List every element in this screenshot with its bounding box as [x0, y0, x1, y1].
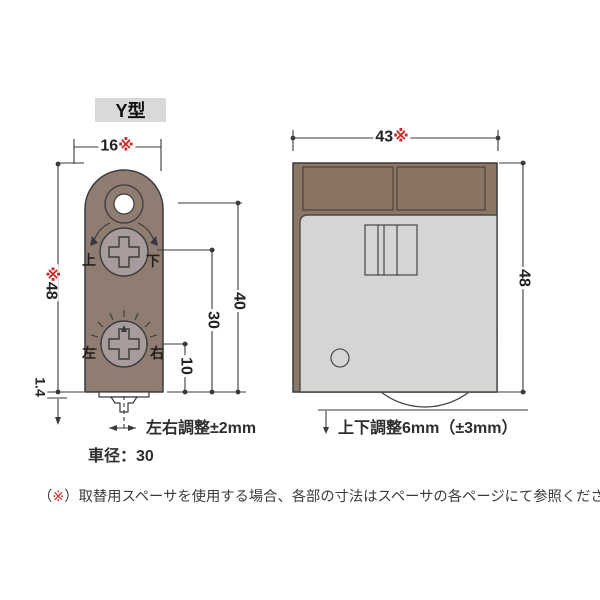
dim-1-4: 1.4 [33, 375, 48, 398]
technical-drawing-page: Y型 16※ ※48 40 30 10 1.4 上 下 左 右 左右調整±2mm… [0, 0, 600, 600]
footnote: （※）取替用スペーサを使用する場合、各部の寸法はスペーサの各ページにて参照くださ… [38, 490, 600, 504]
type-label: Y型 [95, 98, 166, 122]
dim-30: 30 [204, 309, 221, 331]
dim-10: 10 [177, 355, 194, 377]
housing-body [300, 215, 497, 392]
asterisk-marker: ※ [42, 266, 59, 282]
right-roller-front-view [293, 163, 528, 434]
wheel-diameter-note: 車径：30 [88, 449, 154, 465]
mount-hole [114, 194, 134, 214]
frame-panel-right [397, 167, 485, 210]
updown-adjust-note: 上下調整6mm（±3mm） [338, 421, 518, 437]
screw-label-right: 右 [150, 346, 164, 360]
dim-height-48: ※48 [42, 264, 59, 301]
screw-label-left: 左 [82, 346, 96, 360]
dim-40: 40 [230, 290, 247, 312]
diagram-linework [0, 0, 600, 600]
dim-width-16: 16※ [98, 139, 135, 156]
screw-label-up: 上 [82, 253, 96, 267]
dim-height-48-right: 48 [515, 267, 532, 289]
asterisk-marker: ※ [118, 138, 134, 155]
footnote-text: 取替用スペーサを使用する場合、各部の寸法はスペーサの各ページにて参照ください。 [79, 489, 600, 505]
type-label-text: Y型 [115, 97, 145, 123]
left-roller-side-view [85, 170, 163, 412]
leftright-adjust-note: 左右調整±2mm [146, 421, 256, 437]
frame-panel-left [303, 167, 393, 210]
asterisk-marker: ※ [393, 129, 409, 146]
asterisk-marker: ※ [52, 489, 64, 505]
screw-label-down: 下 [146, 254, 160, 268]
dim-width-43: 43※ [373, 130, 410, 147]
